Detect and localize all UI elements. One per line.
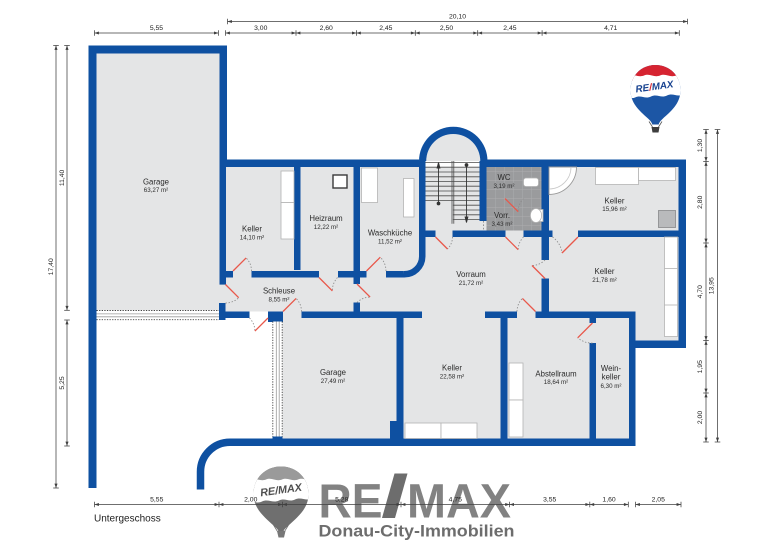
svg-text:5,55: 5,55 <box>150 496 163 503</box>
svg-text:Keller: Keller <box>442 364 462 373</box>
svg-text:1,30: 1,30 <box>697 139 704 152</box>
svg-text:6,30 m²: 6,30 m² <box>601 383 622 390</box>
svg-text:Untergeschoss: Untergeschoss <box>94 514 161 525</box>
svg-text:Donau-City-Immobilien: Donau-City-Immobilien <box>319 522 515 541</box>
svg-text:3,55: 3,55 <box>543 496 556 503</box>
svg-text:63,27 m²: 63,27 m² <box>144 187 168 194</box>
svg-text:21,72 m²: 21,72 m² <box>459 280 483 287</box>
svg-text:2,60: 2,60 <box>320 25 333 32</box>
svg-text:5,28: 5,28 <box>335 496 348 503</box>
svg-text:RE: RE <box>319 475 383 529</box>
svg-text:2,05: 2,05 <box>652 496 665 503</box>
svg-text:2,00: 2,00 <box>697 411 704 424</box>
svg-text:1,95: 1,95 <box>697 360 704 373</box>
svg-text:WC: WC <box>498 173 511 182</box>
svg-text:2,50: 2,50 <box>440 25 453 32</box>
svg-text:5,25: 5,25 <box>59 376 66 389</box>
svg-text:Garage: Garage <box>320 368 346 377</box>
svg-text:27,49 m²: 27,49 m² <box>321 378 345 385</box>
svg-text:11,52 m²: 11,52 m² <box>378 238 402 245</box>
svg-text:11,40: 11,40 <box>59 169 66 186</box>
svg-text:5,55: 5,55 <box>150 25 163 32</box>
svg-text:Abstellraum: Abstellraum <box>535 370 576 379</box>
svg-text:20,10: 20,10 <box>449 13 466 20</box>
svg-text:Schleuse: Schleuse <box>263 287 295 296</box>
svg-text:2,80: 2,80 <box>697 195 704 208</box>
svg-text:3,19 m²: 3,19 m² <box>494 183 515 190</box>
svg-text:keller: keller <box>602 372 621 381</box>
svg-text:3,43 m²: 3,43 m² <box>492 221 513 228</box>
svg-text:4,75: 4,75 <box>449 496 462 503</box>
svg-text:21,78 m²: 21,78 m² <box>592 277 616 284</box>
svg-text:15,96 m²: 15,96 m² <box>602 206 626 213</box>
svg-text:Vorraum: Vorraum <box>456 270 485 279</box>
svg-text:2,00: 2,00 <box>244 496 257 503</box>
svg-text:17,40: 17,40 <box>48 258 55 275</box>
svg-text:2,45: 2,45 <box>503 25 516 32</box>
svg-text:Vorr.: Vorr. <box>494 211 510 220</box>
svg-text:22,58 m²: 22,58 m² <box>440 373 464 380</box>
svg-text:12,22 m²: 12,22 m² <box>314 224 338 231</box>
svg-text:14,10 m²: 14,10 m² <box>240 234 264 241</box>
svg-text:13,95: 13,95 <box>709 277 716 294</box>
svg-text:Waschküche: Waschküche <box>368 229 412 238</box>
svg-text:3,00: 3,00 <box>254 25 267 32</box>
svg-text:18,64 m²: 18,64 m² <box>544 379 568 386</box>
svg-text:4,70: 4,70 <box>697 285 704 298</box>
svg-text:1,60: 1,60 <box>602 496 615 503</box>
svg-text:Keller: Keller <box>242 225 262 234</box>
svg-text:Keller: Keller <box>595 267 615 276</box>
svg-text:4,71: 4,71 <box>604 25 617 32</box>
svg-text:8,55 m²: 8,55 m² <box>269 296 290 303</box>
svg-text:Heizraum: Heizraum <box>309 214 342 223</box>
svg-text:Keller: Keller <box>605 196 625 205</box>
svg-text:2,45: 2,45 <box>379 25 392 32</box>
svg-text:Garage: Garage <box>143 178 169 187</box>
